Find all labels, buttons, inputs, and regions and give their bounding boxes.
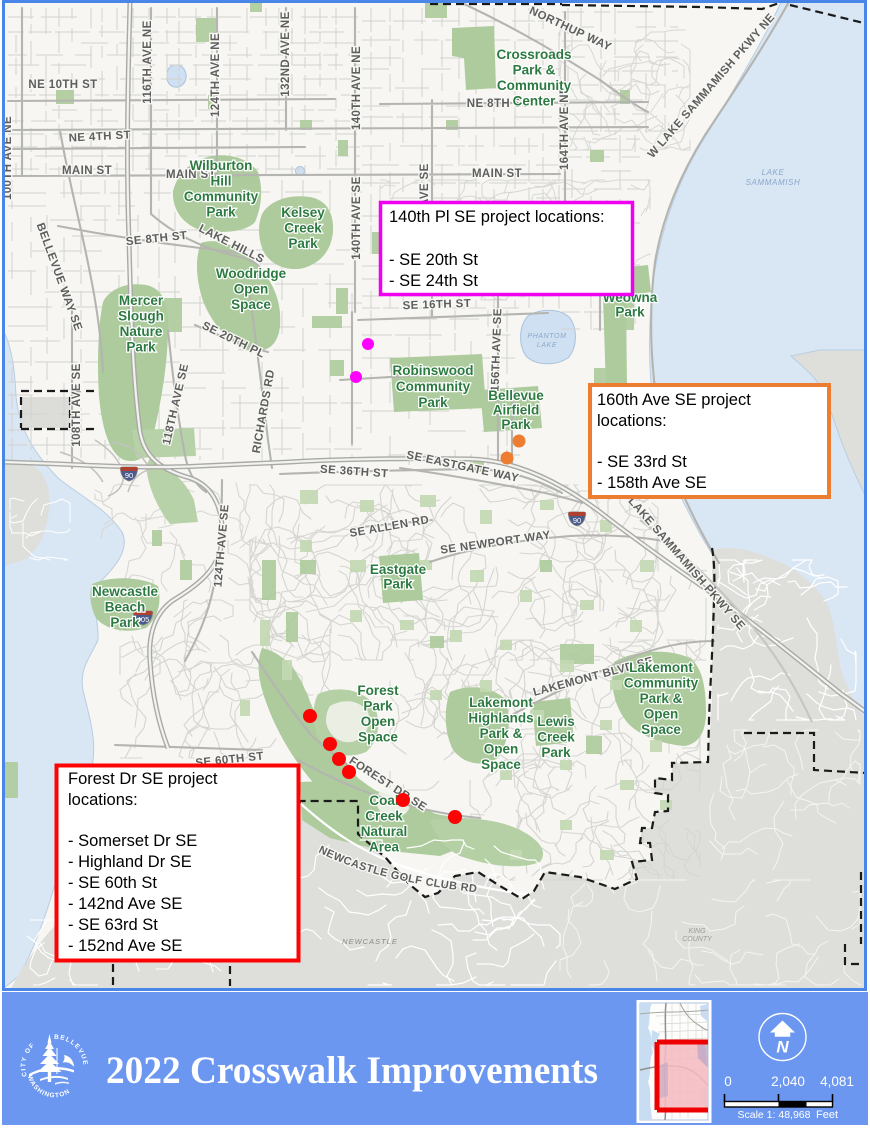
svg-text:Space: Space <box>358 730 398 745</box>
svg-text:90: 90 <box>573 516 581 525</box>
svg-text:- SE 20th St: - SE 20th St <box>389 251 478 269</box>
svg-text:Center: Center <box>513 94 557 109</box>
svg-text:Mercer: Mercer <box>119 293 164 308</box>
svg-text:Bellevue: Bellevue <box>488 388 544 403</box>
svg-text:Beach: Beach <box>105 600 146 615</box>
svg-text:Slough: Slough <box>118 309 164 324</box>
svg-text:- SE 24th St: - SE 24th St <box>389 272 478 290</box>
svg-text:Community: Community <box>396 379 471 394</box>
svg-text:164TH AVE NE: 164TH AVE NE <box>559 86 571 170</box>
svg-text:- 142nd Ave SE: - 142nd Ave SE <box>68 895 182 913</box>
svg-text:Community: Community <box>184 189 259 204</box>
svg-text:Kelsey: Kelsey <box>281 205 325 220</box>
svg-text:90: 90 <box>125 471 133 480</box>
svg-text:140TH AVE SE: 140TH AVE SE <box>351 176 363 259</box>
svg-text:locations:: locations: <box>68 791 138 809</box>
svg-text:Park &: Park & <box>640 691 683 706</box>
svg-text:4,081: 4,081 <box>820 1074 854 1089</box>
svg-text:Park: Park <box>206 205 236 220</box>
svg-text:Nature: Nature <box>120 324 163 339</box>
svg-text:PHANTOM: PHANTOM <box>527 333 566 340</box>
svg-text:COUNTY: COUNTY <box>682 936 713 943</box>
svg-text:Woodridge: Woodridge <box>216 266 287 281</box>
svg-text:0: 0 <box>724 1074 732 1089</box>
svg-text:Park: Park <box>110 615 140 630</box>
svg-text:Park: Park <box>363 699 393 714</box>
svg-text:NEWCASTLE: NEWCASTLE <box>342 937 398 946</box>
svg-text:2,040: 2,040 <box>771 1074 805 1089</box>
svg-text:Park: Park <box>383 577 413 592</box>
svg-text:locations:: locations: <box>597 412 667 430</box>
svg-text:Park: Park <box>541 745 571 760</box>
svg-text:- SE 60th St: - SE 60th St <box>68 874 157 892</box>
svg-text:- 158th Ave SE: - 158th Ave SE <box>597 474 707 492</box>
svg-text:Community: Community <box>497 78 572 93</box>
svg-text:Newcastle: Newcastle <box>92 584 159 599</box>
svg-text:- SE 63rd St: - SE 63rd St <box>68 916 158 934</box>
svg-text:Natural: Natural <box>361 824 408 839</box>
svg-text:Eastgate: Eastgate <box>370 562 427 577</box>
svg-text:108TH AVE SE: 108TH AVE SE <box>71 363 83 446</box>
svg-text:KING: KING <box>688 928 706 935</box>
svg-text:SAMMAMISH: SAMMAMISH <box>746 178 801 187</box>
svg-text:LAKE: LAKE <box>537 342 557 349</box>
svg-text:124TH AVE NE: 124TH AVE NE <box>210 33 222 117</box>
svg-text:MAIN ST: MAIN ST <box>472 168 522 180</box>
svg-text:Space: Space <box>481 757 521 772</box>
svg-text:MAIN ST: MAIN ST <box>62 165 112 177</box>
svg-text:LAKE: LAKE <box>762 168 785 177</box>
svg-text:Park &: Park & <box>480 726 523 741</box>
svg-text:- SE 33rd St: - SE 33rd St <box>597 453 687 471</box>
svg-text:N: N <box>776 1038 789 1057</box>
svg-text:Open: Open <box>234 282 269 297</box>
svg-text:160th Ave SE project: 160th Ave SE project <box>597 391 751 409</box>
svg-text:Airfield: Airfield <box>493 403 540 418</box>
svg-text:- Highland Dr SE: - Highland Dr SE <box>68 853 192 871</box>
svg-text:Lakemont: Lakemont <box>629 660 693 675</box>
svg-text:Park: Park <box>418 395 448 410</box>
svg-text:Robinswood: Robinswood <box>393 363 474 378</box>
svg-text:NE 10TH ST: NE 10TH ST <box>28 79 97 91</box>
svg-text:Forest: Forest <box>357 683 399 698</box>
svg-text:Open: Open <box>644 707 679 722</box>
svg-text:SE 16TH ST: SE 16TH ST <box>402 298 471 312</box>
svg-text:- 152nd Ave SE: - 152nd Ave SE <box>68 937 182 955</box>
svg-text:Space: Space <box>231 297 271 312</box>
svg-text:- Somerset Dr SE: - Somerset Dr SE <box>68 832 197 850</box>
svg-text:132ND AVE NE: 132ND AVE NE <box>280 11 292 96</box>
svg-text:Open: Open <box>484 742 519 757</box>
svg-text:Highlands: Highlands <box>468 711 533 726</box>
svg-text:140TH AVE NE: 140TH AVE NE <box>351 46 363 130</box>
svg-text:Creek: Creek <box>284 221 322 236</box>
svg-text:Scale 1: 48,968: Scale 1: 48,968 <box>738 1109 811 1121</box>
svg-text:Park: Park <box>615 305 645 320</box>
svg-text:Park &: Park & <box>513 63 556 78</box>
svg-text:140th Pl SE project locations:: 140th Pl SE project locations: <box>389 208 605 226</box>
svg-text:Creek: Creek <box>537 730 575 745</box>
svg-text:Space: Space <box>641 722 681 737</box>
svg-text:Lewis: Lewis <box>537 714 575 729</box>
svg-text:Feet: Feet <box>816 1109 838 1121</box>
svg-text:Community: Community <box>624 676 699 691</box>
svg-text:116TH AVE NE: 116TH AVE NE <box>142 20 154 103</box>
svg-text:Creek: Creek <box>365 809 403 824</box>
svg-text:Wilburton: Wilburton <box>190 158 253 173</box>
svg-text:Open: Open <box>361 714 396 729</box>
svg-text:Area: Area <box>369 840 400 855</box>
svg-text:Hill: Hill <box>210 174 231 189</box>
svg-text:Park: Park <box>501 417 531 432</box>
svg-text:Coal: Coal <box>369 793 398 808</box>
svg-text:Lakemont: Lakemont <box>469 695 533 710</box>
svg-text:Forest Dr SE project: Forest Dr SE project <box>68 770 218 788</box>
svg-text:Park: Park <box>288 236 318 251</box>
svg-text:2022 Crosswalk Improvements: 2022 Crosswalk Improvements <box>106 1049 598 1092</box>
svg-text:Crossroads: Crossroads <box>496 47 571 62</box>
svg-text:Park: Park <box>126 340 156 355</box>
